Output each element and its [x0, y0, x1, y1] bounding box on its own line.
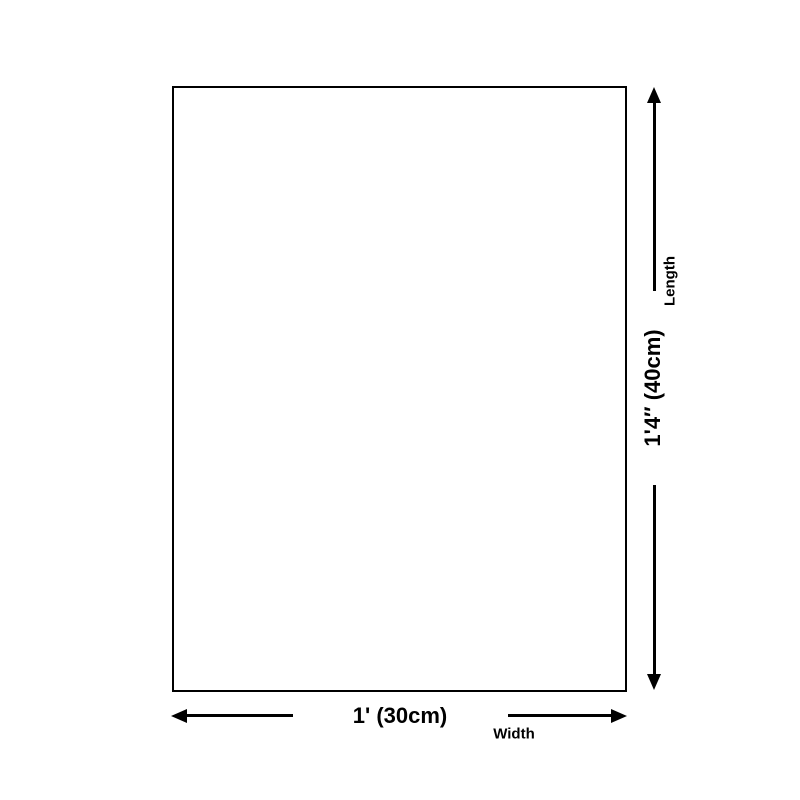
length-dimension-line-bottom — [653, 485, 656, 675]
arrow-left-icon — [171, 709, 187, 723]
product-outline — [172, 86, 627, 692]
width-value: 1' (30cm) — [353, 703, 448, 729]
length-dimension-line-top — [653, 101, 656, 291]
arrow-down-icon — [647, 674, 661, 690]
width-dimension-line-right — [508, 714, 612, 717]
width-axis-label: Width — [493, 726, 535, 743]
arrow-right-icon — [611, 709, 627, 723]
length-axis-label: Length — [662, 256, 679, 306]
width-dimension-line-left — [186, 714, 293, 717]
length-value: 1'4″ (40cm) — [640, 329, 666, 446]
dimension-diagram: Length 1'4″ (40cm) 1' (30cm) Width — [0, 0, 800, 800]
